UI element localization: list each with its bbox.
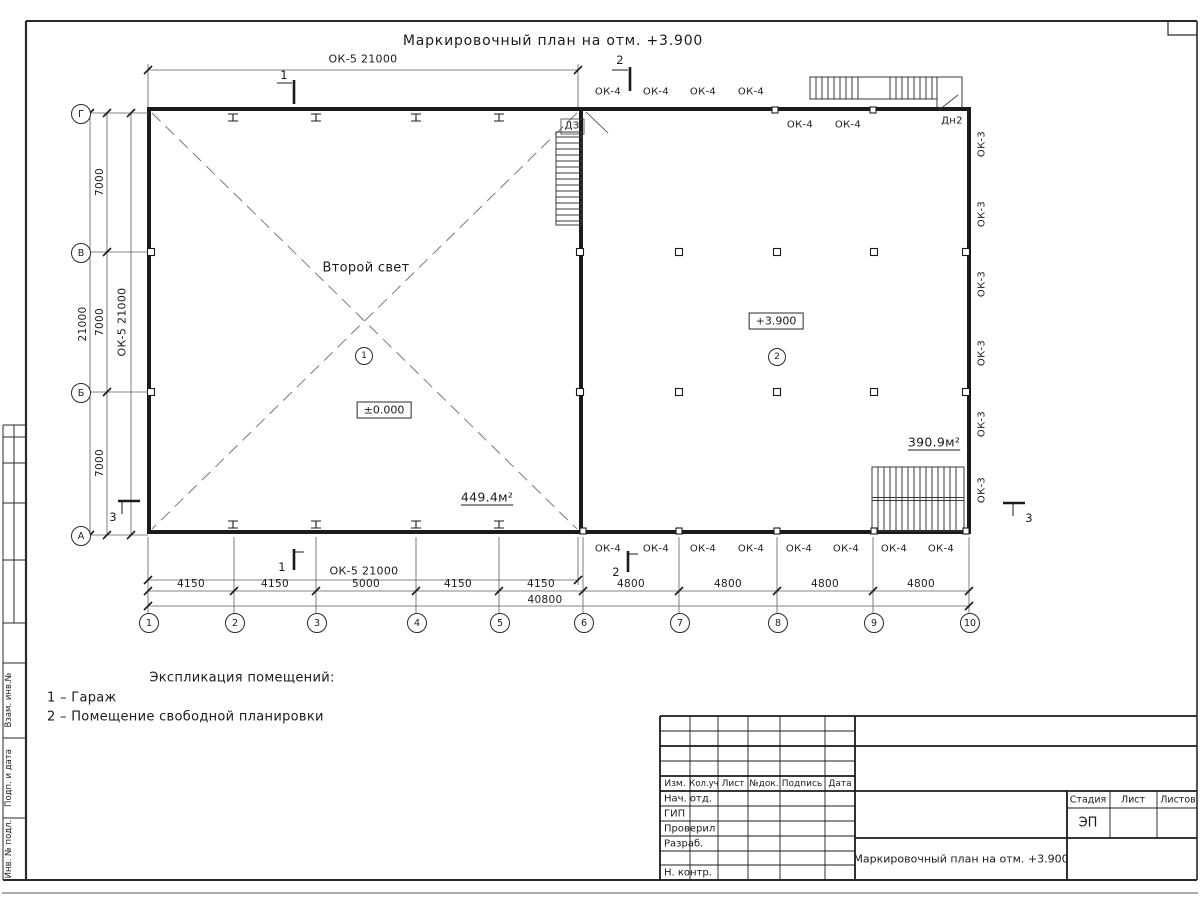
axis-bubble: 7 [670,613,690,633]
titleblock-col: Дата [828,779,851,789]
dim-value: 5000 [352,578,380,590]
dim-value: 7000 [94,168,106,196]
titleblock-row: Проверил [664,824,715,835]
legend-item: 2 – Помещение свободной планировки [47,710,324,725]
titleblock-col: Подпись [782,779,822,789]
titleblock-stage-col: Стадия [1070,795,1106,806]
room2-area: 390.9м² [908,435,960,450]
titleblock-row: Н. контр. [664,868,712,879]
axis-bubble: 1 [139,613,159,633]
side-stamp-grid [3,425,26,880]
dim-left-wall-ok5: ОК-5 21000 [116,288,129,357]
stair-top-exterior [810,77,962,110]
window-mark: ОК-3 [977,411,988,437]
window-mark: ОК-4 [738,544,764,555]
axis-bubble: 6 [574,613,594,633]
dim-value: 7000 [94,308,106,336]
window-mark: ОК-4 [690,87,716,98]
room1-level: ±0.000 [357,402,412,419]
titleblock-row: Нач. отд. [664,794,712,805]
titleblock-row: ГИП [664,809,685,820]
drawing-sheet: Маркировочный план на отм. +3.900 ОК-5 2… [0,0,1200,900]
side-stamp-label: Инв. № подл. [4,820,14,879]
axis-bubble: А [71,526,91,546]
axis-bubble: 2 [225,613,245,633]
column-markers [148,107,970,534]
titleblock-col: Лист [722,779,745,789]
building-walls [149,109,969,532]
axis-bubble: В [71,243,91,263]
dim-value: 7000 [94,449,106,477]
dimension-ticks [86,66,973,610]
void-cross [152,113,577,529]
dim-total-y: 21000 [77,307,89,342]
room2-number: 2 [768,348,786,366]
dim-value: 4800 [617,578,645,590]
window-mark: ОК-3 [977,477,988,503]
section-mark-1-bottom: 1 [278,560,286,574]
window-mark: ОК-4 [643,87,669,98]
window-mark: ОК-3 [977,201,988,227]
section-mark-1-top: 1 [280,68,288,82]
dim-total-x: 40800 [528,594,563,606]
titleblock-stage-col: Листов [1160,795,1196,806]
section-mark-3-left: 3 [109,510,117,524]
dim-value: 4150 [261,578,289,590]
window-mark: ОК-4 [835,120,861,131]
axis-bubble: Б [71,383,91,403]
axis-bubble: 3 [307,613,327,633]
sheet-frame [2,21,1198,893]
window-mark: ОК-4 [643,544,669,555]
dim-value: 4150 [527,578,555,590]
window-mark: ОК-4 [595,87,621,98]
window-mark: ОК-4 [881,544,907,555]
dim-value: 4150 [444,578,472,590]
dim-bottom-ok5: ОК-5 21000 [330,565,399,578]
titleblock-col: Изм. [664,779,685,789]
axis-bubble: 5 [490,613,510,633]
axis-bubble: 8 [768,613,788,633]
titleblock-col: Кол.уч [689,779,718,789]
titleblock-col: №док. [749,779,778,789]
titleblock-doc-title: Маркировочный план на отм. +3.900 [853,853,1068,866]
dim-value: 4800 [811,578,839,590]
drawing-title: Маркировочный план на отм. +3.900 [403,33,703,49]
window-mark: ОК-3 [977,271,988,297]
legend-heading: Экспликация помещений: [149,671,334,686]
dim-value: 4150 [177,578,205,590]
side-stamp-label: Взам. инв.№ [4,672,14,727]
titleblock-row: Разраб. [664,839,703,850]
dim-top-ok5: ОК-5 21000 [329,53,398,66]
window-mark: ОК-3 [977,340,988,366]
door-mark-dn2: Дн2 [941,116,963,127]
section-mark-3-right: 3 [1025,511,1033,525]
window-mark: ОК-4 [833,544,859,555]
axis-bubble: Г [71,104,91,124]
stair-bottom-right [872,467,964,531]
plan-linework [0,0,1200,900]
window-mark: ОК-4 [787,120,813,131]
window-mark: ОК-4 [738,87,764,98]
dim-value: 4800 [907,578,935,590]
room1-label: Второй свет [323,261,410,276]
titleblock-stage-col: Лист [1121,795,1145,806]
door-mark-dz: ДЗ [565,121,580,132]
side-stamp-label: Подп. и дата [4,749,14,807]
room1-number: 1 [355,347,373,365]
room1-area: 449.4м² [461,490,513,505]
axis-bubble: 10 [960,613,980,633]
window-mark: ОК-4 [786,544,812,555]
window-mark: ОК-3 [977,131,988,157]
window-mark: ОК-4 [690,544,716,555]
axis-bubble: 4 [407,613,427,633]
window-mark: ОК-4 [595,544,621,555]
dim-value: 4800 [714,578,742,590]
room2-level: +3.900 [749,313,804,330]
titleblock-stage-value: ЭП [1079,816,1098,831]
axis-bubble: 9 [864,613,884,633]
legend-item: 1 – Гараж [47,691,117,706]
section-mark-2-bottom: 2 [612,565,620,579]
window-mark: ОК-4 [928,544,954,555]
section-mark-2-top: 2 [616,53,624,67]
